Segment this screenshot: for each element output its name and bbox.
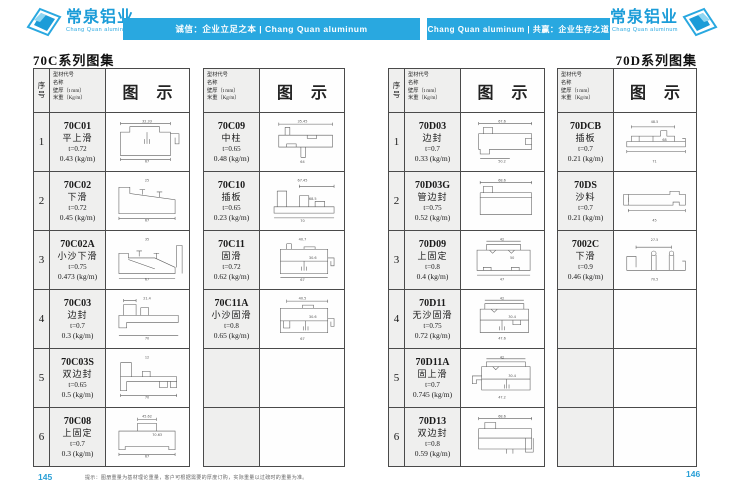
profile-cross-section-drawing: 27.570.5	[616, 234, 693, 285]
seq-cell: 2	[33, 171, 49, 230]
table-row: 570C03S双边封t=0.650.5 (kg/m)1270	[33, 348, 189, 407]
dimension-label: 25	[145, 179, 149, 183]
dimension-label: 48.5	[651, 120, 659, 124]
dimension-label: 47.6	[499, 337, 507, 341]
profile-weight: 0.52 (kg/m)	[415, 213, 450, 223]
profile-name: 边封	[422, 133, 442, 145]
profile-weight: 0.3 (kg/m)	[62, 331, 94, 341]
spec-header-line: 米重（Kg/m）	[53, 95, 86, 103]
profile-info-cell: 70D03G管边封t=0.750.52 (kg/m)	[404, 171, 460, 230]
profile-info-cell: 7002C下滑t=0.90.46 (kg/m)	[557, 230, 613, 289]
seq-header-cell: 序号	[33, 68, 49, 112]
profile-diagram-cell: 45.626770.63	[105, 407, 189, 466]
dimension-label: 67	[145, 160, 149, 164]
spec-header-line: 米重（Kg/m）	[207, 95, 240, 103]
profile-code: 70C10	[218, 179, 245, 192]
profile-name: 双边封	[62, 369, 92, 381]
profile-thickness: t=0.7	[70, 440, 85, 449]
spec-header-cell: 型材代号名称壁厚（t mm）米重（Kg/m）	[404, 68, 460, 112]
profile-diagram-cell: 2567	[105, 171, 189, 230]
dimension-label: 30.4	[509, 375, 517, 379]
profile-diagram-cell	[613, 407, 696, 466]
profile-weight: 0.21 (kg/m)	[568, 154, 603, 164]
profile-diagram-cell	[259, 407, 344, 466]
profile-code: 70C02	[64, 179, 91, 192]
page-number-right: 146	[686, 469, 700, 479]
table-row: 170C01平上滑t=0.720.43 (kg/m)32.3367	[33, 112, 189, 171]
dimension-label: 12	[145, 356, 149, 360]
profile-cross-section-drawing: 67.457068.5	[263, 175, 342, 226]
profile-info-cell: 70C10插板t=0.650.23 (kg/m)	[203, 171, 259, 230]
profile-weight: 0.45 (kg/m)	[60, 213, 95, 223]
profile-cross-section-drawing: 4247.630.4	[463, 293, 541, 344]
profile-name: 插板	[221, 192, 241, 204]
series-title-70d: 70D系列图集	[616, 50, 697, 69]
profile-name: 平上滑	[62, 133, 92, 145]
table-header-row: 序号型材代号名称壁厚（t mm）米重（Kg/m）图 示	[33, 68, 189, 112]
diagram-header-cell: 图 示	[460, 68, 544, 112]
seq-number: 3	[394, 254, 400, 266]
profile-weight: 0.72 (kg/m)	[415, 331, 450, 341]
diagram-header-label: 图 示	[115, 79, 179, 103]
dimension-label: 47.2	[499, 396, 507, 400]
profile-weight: 0.5 (kg/m)	[62, 390, 94, 400]
spec-header-cell: 型材代号名称壁厚（t mm）米重（Kg/m）	[49, 68, 105, 112]
profile-info-cell: 70D09上固定t=0.80.4 (kg/m)	[404, 230, 460, 289]
profile-info-cell: 70C09中柱t=0.650.48 (kg/m)	[203, 112, 259, 171]
profile-cross-section-drawing: 68.6	[463, 411, 541, 462]
table-row: 270C02下滑t=0.720.45 (kg/m)2567	[33, 171, 189, 230]
seq-cell: 6	[388, 407, 404, 466]
dimension-label: 21.4	[144, 297, 152, 301]
table-header-row: 型材代号名称壁厚（t mm）米重（Kg/m）图 示	[557, 68, 696, 112]
profile-code: 70C11A	[215, 297, 249, 310]
profile-code: 70DS	[574, 179, 597, 192]
spec-header-line: 米重（Kg/m）	[408, 95, 441, 103]
seq-cell: 1	[33, 112, 49, 171]
profile-name: 管边封	[417, 192, 447, 204]
profile-cross-section-drawing: 67.650.2	[463, 116, 541, 167]
seq-cell: 5	[33, 348, 49, 407]
table-row: 70C10插板t=0.650.23 (kg/m)67.457068.5	[203, 171, 344, 230]
profile-table-70c-left: 序号型材代号名称壁厚（t mm）米重（Kg/m）图 示170C01平上滑t=0.…	[33, 68, 190, 467]
dimension-label: 70.63	[153, 434, 163, 438]
profile-cross-section-drawing: 1270	[108, 352, 186, 403]
table-row: 670D13双边封t=0.80.59 (kg/m)68.6	[388, 407, 544, 466]
profile-cross-section-drawing: 32.3367	[108, 116, 186, 167]
profile-code: 70D13	[419, 415, 446, 428]
table-row: 70DS沙料t=0.70.21 (kg/m)45	[557, 171, 696, 230]
profile-diagram-cell: 4247.630.4	[460, 289, 544, 348]
spec-header-cell: 型材代号名称壁厚（t mm）米重（Kg/m）	[557, 68, 613, 112]
spec-header-line: 名称	[408, 80, 418, 88]
spec-header-line: 名称	[207, 80, 217, 88]
table-row	[203, 348, 344, 407]
profile-weight: 0.745 (kg/m)	[413, 390, 452, 400]
profile-thickness: t=0.75	[423, 204, 441, 213]
profile-thickness: t=0.72	[222, 263, 240, 272]
dimension-label: 71	[653, 160, 657, 164]
diagram-header-label: 图 示	[623, 79, 687, 103]
profile-info-cell: 70C02A小沙下滑t=0.750.473 (kg/m)	[49, 230, 105, 289]
table-row: 370C02A小沙下滑t=0.750.473 (kg/m)3567	[33, 230, 189, 289]
seq-number: 3	[39, 254, 45, 266]
seq-cell: 1	[388, 112, 404, 171]
profile-thickness: t=0.7	[425, 381, 440, 390]
dimension-label: 70	[145, 396, 149, 400]
profile-diagram-cell: 68.6	[460, 171, 544, 230]
slogan-banner-right: Chang Quan aluminum | 共赢：企业生存之道	[427, 18, 610, 40]
seq-header-label: 序号	[392, 82, 400, 99]
table-row: 170D03边封t=0.70.33 (kg/m)67.650.2	[388, 112, 544, 171]
dimension-label: 68	[663, 139, 667, 143]
profile-code: 70D03G	[415, 179, 450, 192]
profile-table-70c-right: 型材代号名称壁厚（t mm）米重（Kg/m）图 示70C09中柱t=0.650.…	[203, 68, 345, 467]
profile-name: 上固定	[62, 428, 92, 440]
profile-code: 70C03S	[61, 356, 94, 369]
catalog-spread: 常泉铝业 Chang Quan aluminum 诚信：企业立足之本 | Cha…	[0, 0, 730, 498]
brand-name: 常泉铝业	[610, 10, 678, 26]
profile-thickness: t=0.72	[68, 145, 86, 154]
profile-weight: 0.62 (kg/m)	[214, 272, 249, 282]
dimension-label: 67	[145, 455, 149, 459]
profile-info-cell	[203, 407, 259, 466]
profile-name: 插板	[575, 133, 595, 145]
profile-code: 7002C	[572, 238, 599, 251]
spec-header-line: 型材代号	[207, 72, 228, 80]
profile-code: 70C09	[218, 120, 245, 133]
profile-diagram-cell	[613, 348, 696, 407]
profile-cross-section-drawing: 40.76730.6	[263, 234, 342, 285]
profile-code: 70C08	[64, 415, 91, 428]
profile-diagram-cell: 27.570.5	[613, 230, 696, 289]
profile-name: 边封	[67, 310, 87, 322]
profile-info-cell: 70C11A小沙固滑t=0.80.65 (kg/m)	[203, 289, 259, 348]
profile-info-cell: 70C03边封t=0.70.3 (kg/m)	[49, 289, 105, 348]
profile-thickness: t=0.9	[578, 263, 593, 272]
seq-header-cell: 序号	[388, 68, 404, 112]
profile-diagram-cell: 424750	[460, 230, 544, 289]
profile-diagram-cell: 3567	[105, 230, 189, 289]
profile-weight: 0.48 (kg/m)	[214, 154, 249, 164]
dimension-label: 68.5	[308, 198, 316, 202]
profile-info-cell: 70C01平上滑t=0.720.43 (kg/m)	[49, 112, 105, 171]
seq-header-label: 序号	[37, 82, 45, 99]
page-number-left: 145	[38, 472, 52, 482]
profile-diagram-cell: 45	[613, 171, 696, 230]
profile-info-cell: 70DS沙料t=0.70.21 (kg/m)	[557, 171, 613, 230]
profile-weight: 0.473 (kg/m)	[58, 272, 97, 282]
profile-thickness: t=0.8	[224, 322, 239, 331]
profile-diagram-cell: 32.3367	[105, 112, 189, 171]
profile-table-70d-right: 型材代号名称壁厚（t mm）米重（Kg/m）图 示70DCB插板t=0.70.2…	[557, 68, 697, 467]
table-row: 70C11A小沙固滑t=0.80.65 (kg/m)40.56730.6	[203, 289, 344, 348]
profile-diagram-cell: 67.457068.5	[259, 171, 344, 230]
dimension-label: 70	[300, 219, 304, 223]
diagram-header-label: 图 示	[270, 79, 334, 103]
dimension-label: 64	[300, 160, 305, 164]
table-row: 70C09中柱t=0.650.48 (kg/m)35.4564	[203, 112, 344, 171]
profile-diagram-cell: 1270	[105, 348, 189, 407]
profile-code: 70C03	[64, 297, 91, 310]
profile-weight: 0.33 (kg/m)	[415, 154, 450, 164]
diamond-logo-icon	[26, 7, 62, 37]
dimension-label: 68.6	[499, 179, 507, 183]
seq-number: 4	[39, 313, 45, 325]
profile-thickness: t=0.65	[68, 381, 86, 390]
seq-cell: 2	[388, 171, 404, 230]
profile-weight: 0.23 (kg/m)	[214, 213, 249, 223]
dimension-label: 42	[500, 238, 504, 242]
profile-info-cell: 70C03S双边封t=0.650.5 (kg/m)	[49, 348, 105, 407]
spec-header-cell: 型材代号名称壁厚（t mm）米重（Kg/m）	[203, 68, 259, 112]
seq-number: 4	[394, 313, 400, 325]
profile-info-cell	[557, 348, 613, 407]
profile-cross-section-drawing: 45.626770.63	[108, 411, 186, 462]
dimension-label: 45	[653, 219, 657, 223]
profile-cross-section-drawing: 45	[616, 175, 693, 226]
profile-name: 中柱	[221, 133, 241, 145]
profile-info-cell: 70C11固滑t=0.720.62 (kg/m)	[203, 230, 259, 289]
dimension-label: 67	[300, 337, 304, 341]
profile-cross-section-drawing: 35.4564	[263, 116, 342, 167]
profile-code: 70C01	[64, 120, 91, 133]
profile-name: 小沙固滑	[211, 310, 251, 322]
dimension-label: 40.7	[298, 238, 306, 242]
profile-weight: 0.46 (kg/m)	[568, 272, 603, 282]
profile-thickness: t=0.7	[578, 204, 593, 213]
profile-code: 70C11	[218, 238, 245, 251]
seq-cell: 3	[388, 230, 404, 289]
dimension-label: 50	[510, 257, 514, 261]
dimension-label: 27.5	[651, 238, 659, 242]
profile-diagram-cell: 40.76730.6	[259, 230, 344, 289]
diamond-logo-icon	[682, 7, 718, 37]
profile-name: 双边封	[417, 428, 447, 440]
dimension-label: 30.4	[509, 316, 517, 320]
dimension-label: 67.6	[499, 120, 507, 124]
dimension-label: 67	[145, 278, 149, 282]
dimension-label: 35	[145, 238, 149, 242]
table-row	[203, 407, 344, 466]
spec-header-line: 型材代号	[53, 72, 74, 80]
profile-diagram-cell: 35.4564	[259, 112, 344, 171]
table-row: 70DCB插板t=0.70.21 (kg/m)48.57168	[557, 112, 696, 171]
profile-thickness: t=0.7	[578, 145, 593, 154]
dimension-label: 70.5	[651, 278, 659, 282]
seq-cell: 6	[33, 407, 49, 466]
seq-number: 5	[39, 372, 45, 384]
profile-code: 70D09	[419, 238, 446, 251]
profile-cross-section-drawing: 48.57168	[616, 116, 693, 167]
table-row: 270D03G管边封t=0.750.52 (kg/m)68.6	[388, 171, 544, 230]
seq-cell: 4	[388, 289, 404, 348]
profile-thickness: t=0.7	[70, 322, 85, 331]
dimension-label: 50.2	[499, 160, 507, 164]
profile-thickness: t=0.75	[68, 263, 86, 272]
profile-name: 上固定	[417, 251, 447, 263]
spec-header-line: 米重（Kg/m）	[561, 95, 594, 103]
profile-info-cell: 70C02下滑t=0.720.45 (kg/m)	[49, 171, 105, 230]
profile-thickness: t=0.7	[425, 145, 440, 154]
table-row: 470C03边封t=0.70.3 (kg/m)21.470	[33, 289, 189, 348]
profile-info-cell: 70DCB插板t=0.70.21 (kg/m)	[557, 112, 613, 171]
seq-number: 2	[394, 195, 400, 207]
table-header-row: 序号型材代号名称壁厚（t mm）米重（Kg/m）图 示	[388, 68, 544, 112]
brand-logo-left: 常泉铝业 Chang Quan aluminum	[26, 7, 134, 37]
profile-diagram-cell: 68.6	[460, 407, 544, 466]
profile-info-cell: 70D03边封t=0.70.33 (kg/m)	[404, 112, 460, 171]
series-title-70c: 70C系列图集	[33, 50, 114, 69]
dimension-label: 67	[300, 278, 304, 282]
profile-name: 无沙固滑	[412, 310, 452, 322]
brand-name-en: Chang Quan aluminum	[612, 28, 678, 34]
profile-code: 70D11A	[416, 356, 450, 369]
dimension-label: 47	[500, 278, 504, 282]
profile-name: 下滑	[575, 251, 595, 263]
seq-number: 1	[394, 136, 400, 148]
profile-info-cell	[203, 348, 259, 407]
dimension-label: 42	[500, 297, 504, 301]
profile-info-cell: 70C08上固定t=0.70.3 (kg/m)	[49, 407, 105, 466]
profile-name: 固滑	[221, 251, 241, 263]
dimension-label: 70	[145, 337, 149, 341]
profile-info-cell	[557, 407, 613, 466]
profile-info-cell	[557, 289, 613, 348]
profile-code: 70D03	[419, 120, 446, 133]
table-header-row: 型材代号名称壁厚（t mm）米重（Kg/m）图 示	[203, 68, 344, 112]
profile-code: 70C02A	[60, 238, 94, 251]
profile-diagram-cell: 4247.230.4	[460, 348, 544, 407]
seq-number: 6	[39, 431, 45, 443]
profile-diagram-cell: 40.56730.6	[259, 289, 344, 348]
profile-thickness: t=0.65	[222, 145, 240, 154]
profile-diagram-cell: 21.470	[105, 289, 189, 348]
seq-number: 5	[394, 372, 400, 384]
spec-header-line: 型材代号	[561, 72, 582, 80]
seq-cell: 4	[33, 289, 49, 348]
profile-thickness: t=0.8	[425, 440, 440, 449]
profile-diagram-cell	[259, 348, 344, 407]
profile-diagram-cell: 67.650.2	[460, 112, 544, 171]
profile-name: 下滑	[67, 192, 87, 204]
profile-weight: 0.65 (kg/m)	[214, 331, 249, 341]
profile-cross-section-drawing: 3567	[108, 234, 186, 285]
profile-weight: 0.3 (kg/m)	[62, 449, 94, 459]
spec-header-line: 名称	[53, 80, 63, 88]
profile-thickness: t=0.8	[425, 263, 440, 272]
table-row	[557, 407, 696, 466]
dimension-label: 40.5	[298, 297, 306, 301]
table-row: 470D11无沙固滑t=0.750.72 (kg/m)4247.630.4	[388, 289, 544, 348]
dimension-label: 32.33	[143, 120, 153, 124]
dimension-label: 45.62	[143, 415, 153, 419]
seq-number: 6	[394, 431, 400, 443]
diagram-header-label: 图 示	[470, 79, 534, 103]
profile-cross-section-drawing: 68.6	[463, 175, 541, 226]
profile-info-cell: 70D11无沙固滑t=0.750.72 (kg/m)	[404, 289, 460, 348]
table-row	[557, 348, 696, 407]
profile-cross-section-drawing: 40.56730.6	[263, 293, 342, 344]
brand-logo-right: 常泉铝业 Chang Quan aluminum	[610, 7, 718, 37]
dimension-label: 42	[500, 356, 504, 360]
profile-thickness: t=0.65	[222, 204, 240, 213]
profile-code: 70DCB	[570, 120, 601, 133]
table-row: 370D09上固定t=0.80.4 (kg/m)424750	[388, 230, 544, 289]
spec-header-line: 名称	[561, 80, 571, 88]
spec-header-line: 型材代号	[408, 72, 429, 80]
profile-cross-section-drawing: 21.470	[108, 293, 186, 344]
diagram-header-cell: 图 示	[613, 68, 696, 112]
table-row: 670C08上固定t=0.70.3 (kg/m)45.626770.63	[33, 407, 189, 466]
seq-cell: 3	[33, 230, 49, 289]
profile-weight: 0.59 (kg/m)	[415, 449, 450, 459]
profile-thickness: t=0.72	[68, 204, 86, 213]
seq-number: 2	[39, 195, 45, 207]
seq-number: 1	[39, 136, 45, 148]
dimension-label: 68.6	[499, 415, 507, 419]
profile-diagram-cell: 48.57168	[613, 112, 696, 171]
dimension-label: 67	[145, 219, 149, 223]
profile-weight: 0.43 (kg/m)	[60, 154, 95, 164]
slogan-banner-left: 诚信：企业立足之本 | Chang Quan aluminum	[123, 18, 420, 40]
seq-cell: 5	[388, 348, 404, 407]
dimension-label: 30.6	[308, 257, 316, 261]
profile-weight: 0.21 (kg/m)	[568, 213, 603, 223]
profile-table-70d-left: 序号型材代号名称壁厚（t mm）米重（Kg/m）图 示170D03边封t=0.7…	[388, 68, 545, 467]
profile-info-cell: 70D13双边封t=0.80.59 (kg/m)	[404, 407, 460, 466]
profile-name: 固上滑	[417, 369, 447, 381]
profile-name: 小沙下滑	[57, 251, 97, 263]
dimension-label: 67.45	[297, 179, 307, 183]
profile-code: 70D11	[419, 297, 446, 310]
profile-weight: 0.4 (kg/m)	[417, 272, 449, 282]
profile-diagram-cell	[613, 289, 696, 348]
profile-cross-section-drawing: 424750	[463, 234, 541, 285]
table-row	[557, 289, 696, 348]
footer-disclaimer: 提示：图册重量为基材理论重量，客户可根据需要的厚度订购，实际重量以过磅时的重量为…	[85, 474, 308, 481]
table-row: 70C11固滑t=0.720.62 (kg/m)40.76730.6	[203, 230, 344, 289]
profile-name: 沙料	[575, 192, 595, 204]
profile-info-cell: 70D11A固上滑t=0.70.745 (kg/m)	[404, 348, 460, 407]
profile-cross-section-drawing: 4247.230.4	[463, 352, 541, 403]
diagram-header-cell: 图 示	[105, 68, 189, 112]
profile-cross-section-drawing: 2567	[108, 175, 186, 226]
dimension-label: 30.6	[308, 316, 316, 320]
dimension-label: 35.45	[297, 120, 307, 124]
profile-thickness: t=0.75	[423, 322, 441, 331]
table-row: 570D11A固上滑t=0.70.745 (kg/m)4247.230.4	[388, 348, 544, 407]
diagram-header-cell: 图 示	[259, 68, 344, 112]
table-row: 7002C下滑t=0.90.46 (kg/m)27.570.5	[557, 230, 696, 289]
